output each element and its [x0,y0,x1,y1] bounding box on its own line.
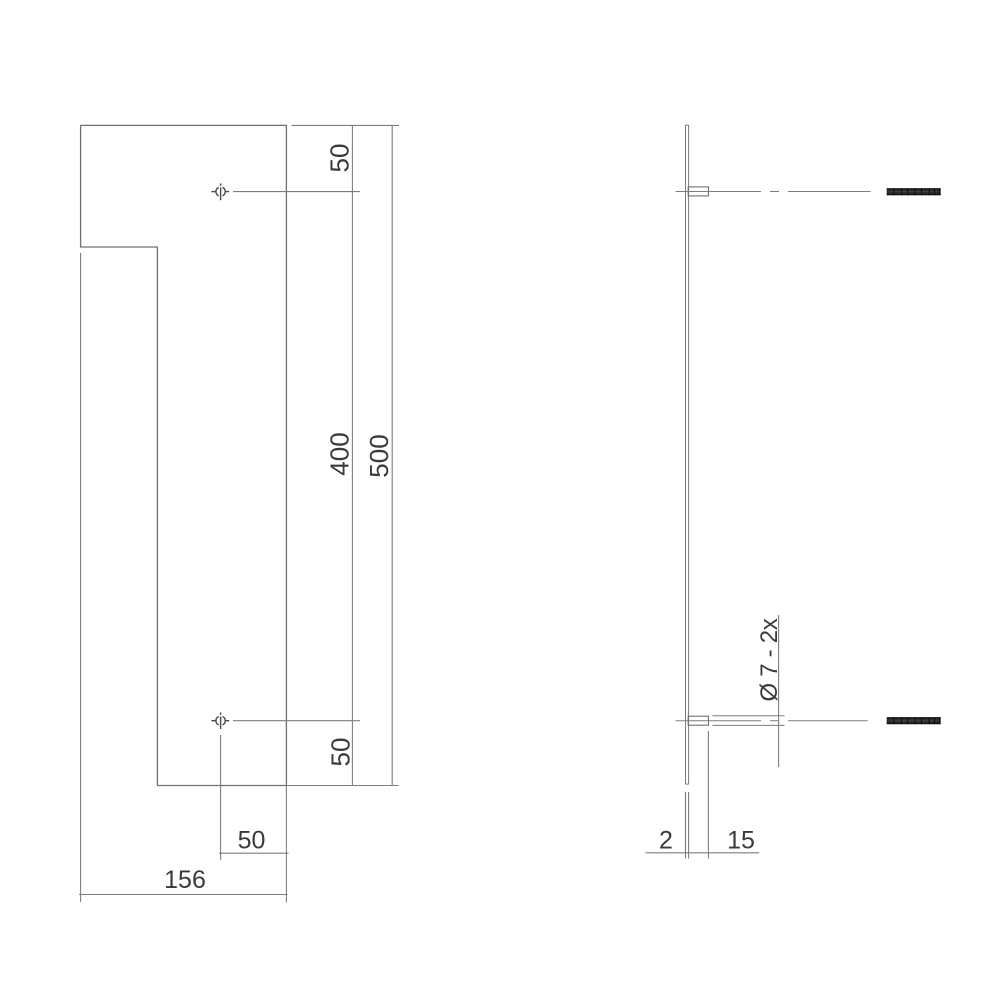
svg-text:156: 156 [164,866,206,894]
svg-text:50: 50 [238,827,266,855]
svg-text:400: 400 [325,432,355,475]
svg-text:50: 50 [326,738,356,767]
svg-text:Ø 7 - 2x: Ø 7 - 2x [756,618,783,701]
svg-text:50: 50 [325,144,355,173]
svg-text:2: 2 [659,826,673,854]
svg-text:15: 15 [727,826,755,854]
svg-text:500: 500 [364,434,394,477]
